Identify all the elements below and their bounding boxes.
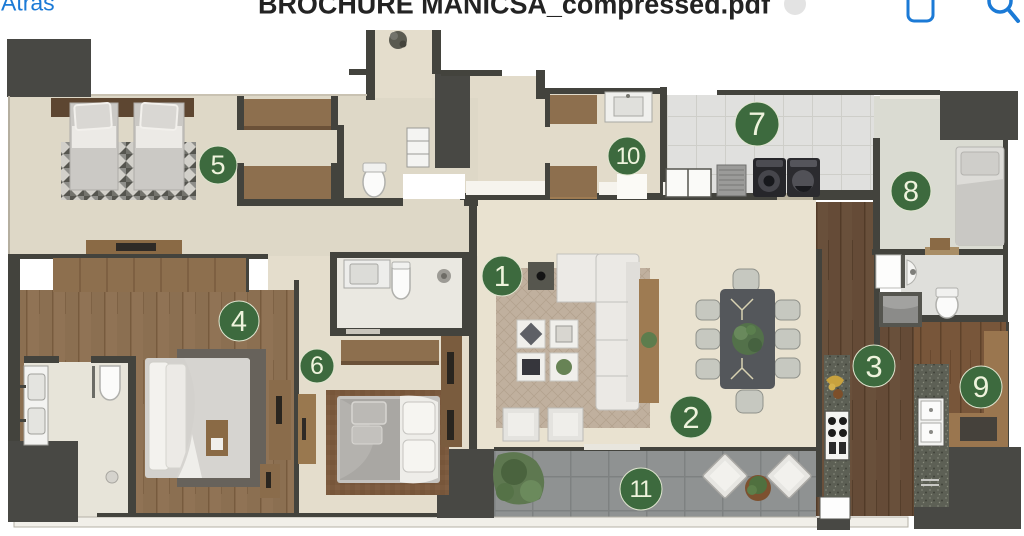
svg-text:1: 1 (494, 261, 510, 293)
svg-text:7: 7 (748, 106, 766, 142)
svg-text:BROCHURE MANICSA_compressed.pd: BROCHURE MANICSA_compressed.pdf (258, 0, 771, 20)
svg-text:6: 6 (310, 352, 324, 380)
svg-text:8: 8 (903, 176, 919, 208)
svg-text:10: 10 (616, 143, 640, 170)
svg-text:3: 3 (865, 349, 882, 384)
svg-text:9: 9 (973, 371, 990, 404)
svg-text:Atrás: Atrás (1, 0, 55, 16)
svg-text:4: 4 (231, 306, 247, 338)
svg-text:2: 2 (682, 400, 699, 435)
svg-text:5: 5 (210, 150, 225, 180)
svg-text:11: 11 (630, 476, 653, 503)
